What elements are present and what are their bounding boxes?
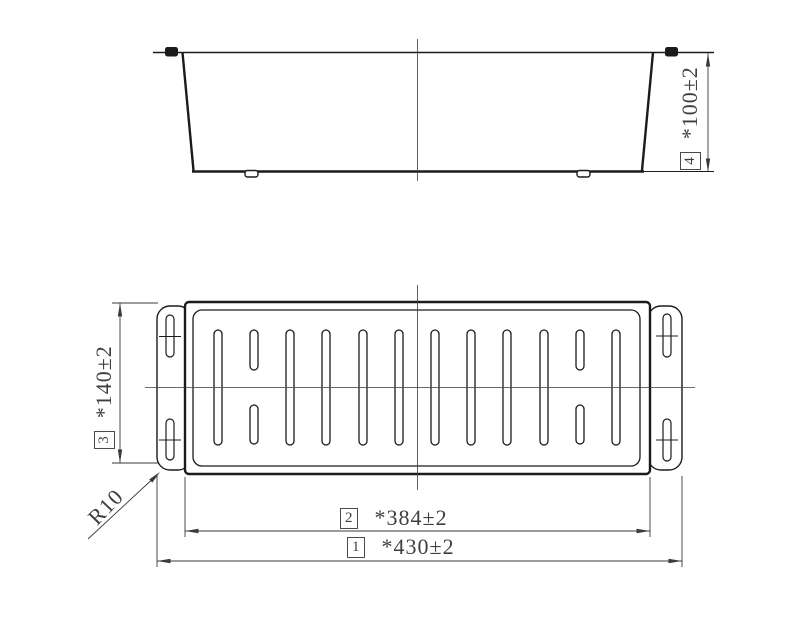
dimension-140 — [112, 303, 158, 463]
arrowhead — [157, 559, 171, 563]
left-wall-line — [183, 53, 194, 171]
right-flange — [648, 306, 682, 470]
left-rim-hook — [165, 47, 178, 57]
dimension-label-100: 4 *100±2 — [677, 53, 703, 183]
arrowhead — [706, 159, 710, 173]
arrowhead — [149, 472, 160, 483]
technical-drawing-canvas: 2 *384±2 1 *430±2 4 *100±2 3 *140±2 R10 — [0, 0, 800, 617]
left-foot — [245, 171, 258, 178]
dimension-ref-box-2: 2 — [340, 508, 358, 529]
arrowhead — [185, 529, 199, 533]
dimension-ref-box-1: 1 — [347, 537, 365, 558]
dimension-100 — [706, 53, 710, 172]
right-foot — [577, 171, 590, 178]
dimension-label-384: 2 *384±2 — [340, 505, 448, 531]
dimension-value-140: *140±2 — [91, 345, 117, 418]
dimension-label-430: 1 *430±2 — [347, 534, 455, 560]
arrowhead — [118, 303, 122, 317]
dimension-value-430: *430±2 — [382, 534, 455, 560]
arrowhead — [669, 559, 683, 563]
arrowhead — [118, 450, 122, 464]
dimension-ref-box-4: 4 — [680, 152, 701, 170]
arrowhead — [637, 529, 651, 533]
dimension-value-384: *384±2 — [375, 505, 448, 531]
dimension-label-140: 3 *140±2 — [91, 332, 117, 462]
dimension-value-100: *100±2 — [677, 66, 703, 139]
right-wall-line — [642, 53, 653, 171]
side-elevation-view — [153, 39, 714, 181]
arrowhead — [706, 53, 710, 67]
plan-view — [145, 285, 695, 490]
dimension-ref-box-3: 3 — [94, 431, 115, 449]
